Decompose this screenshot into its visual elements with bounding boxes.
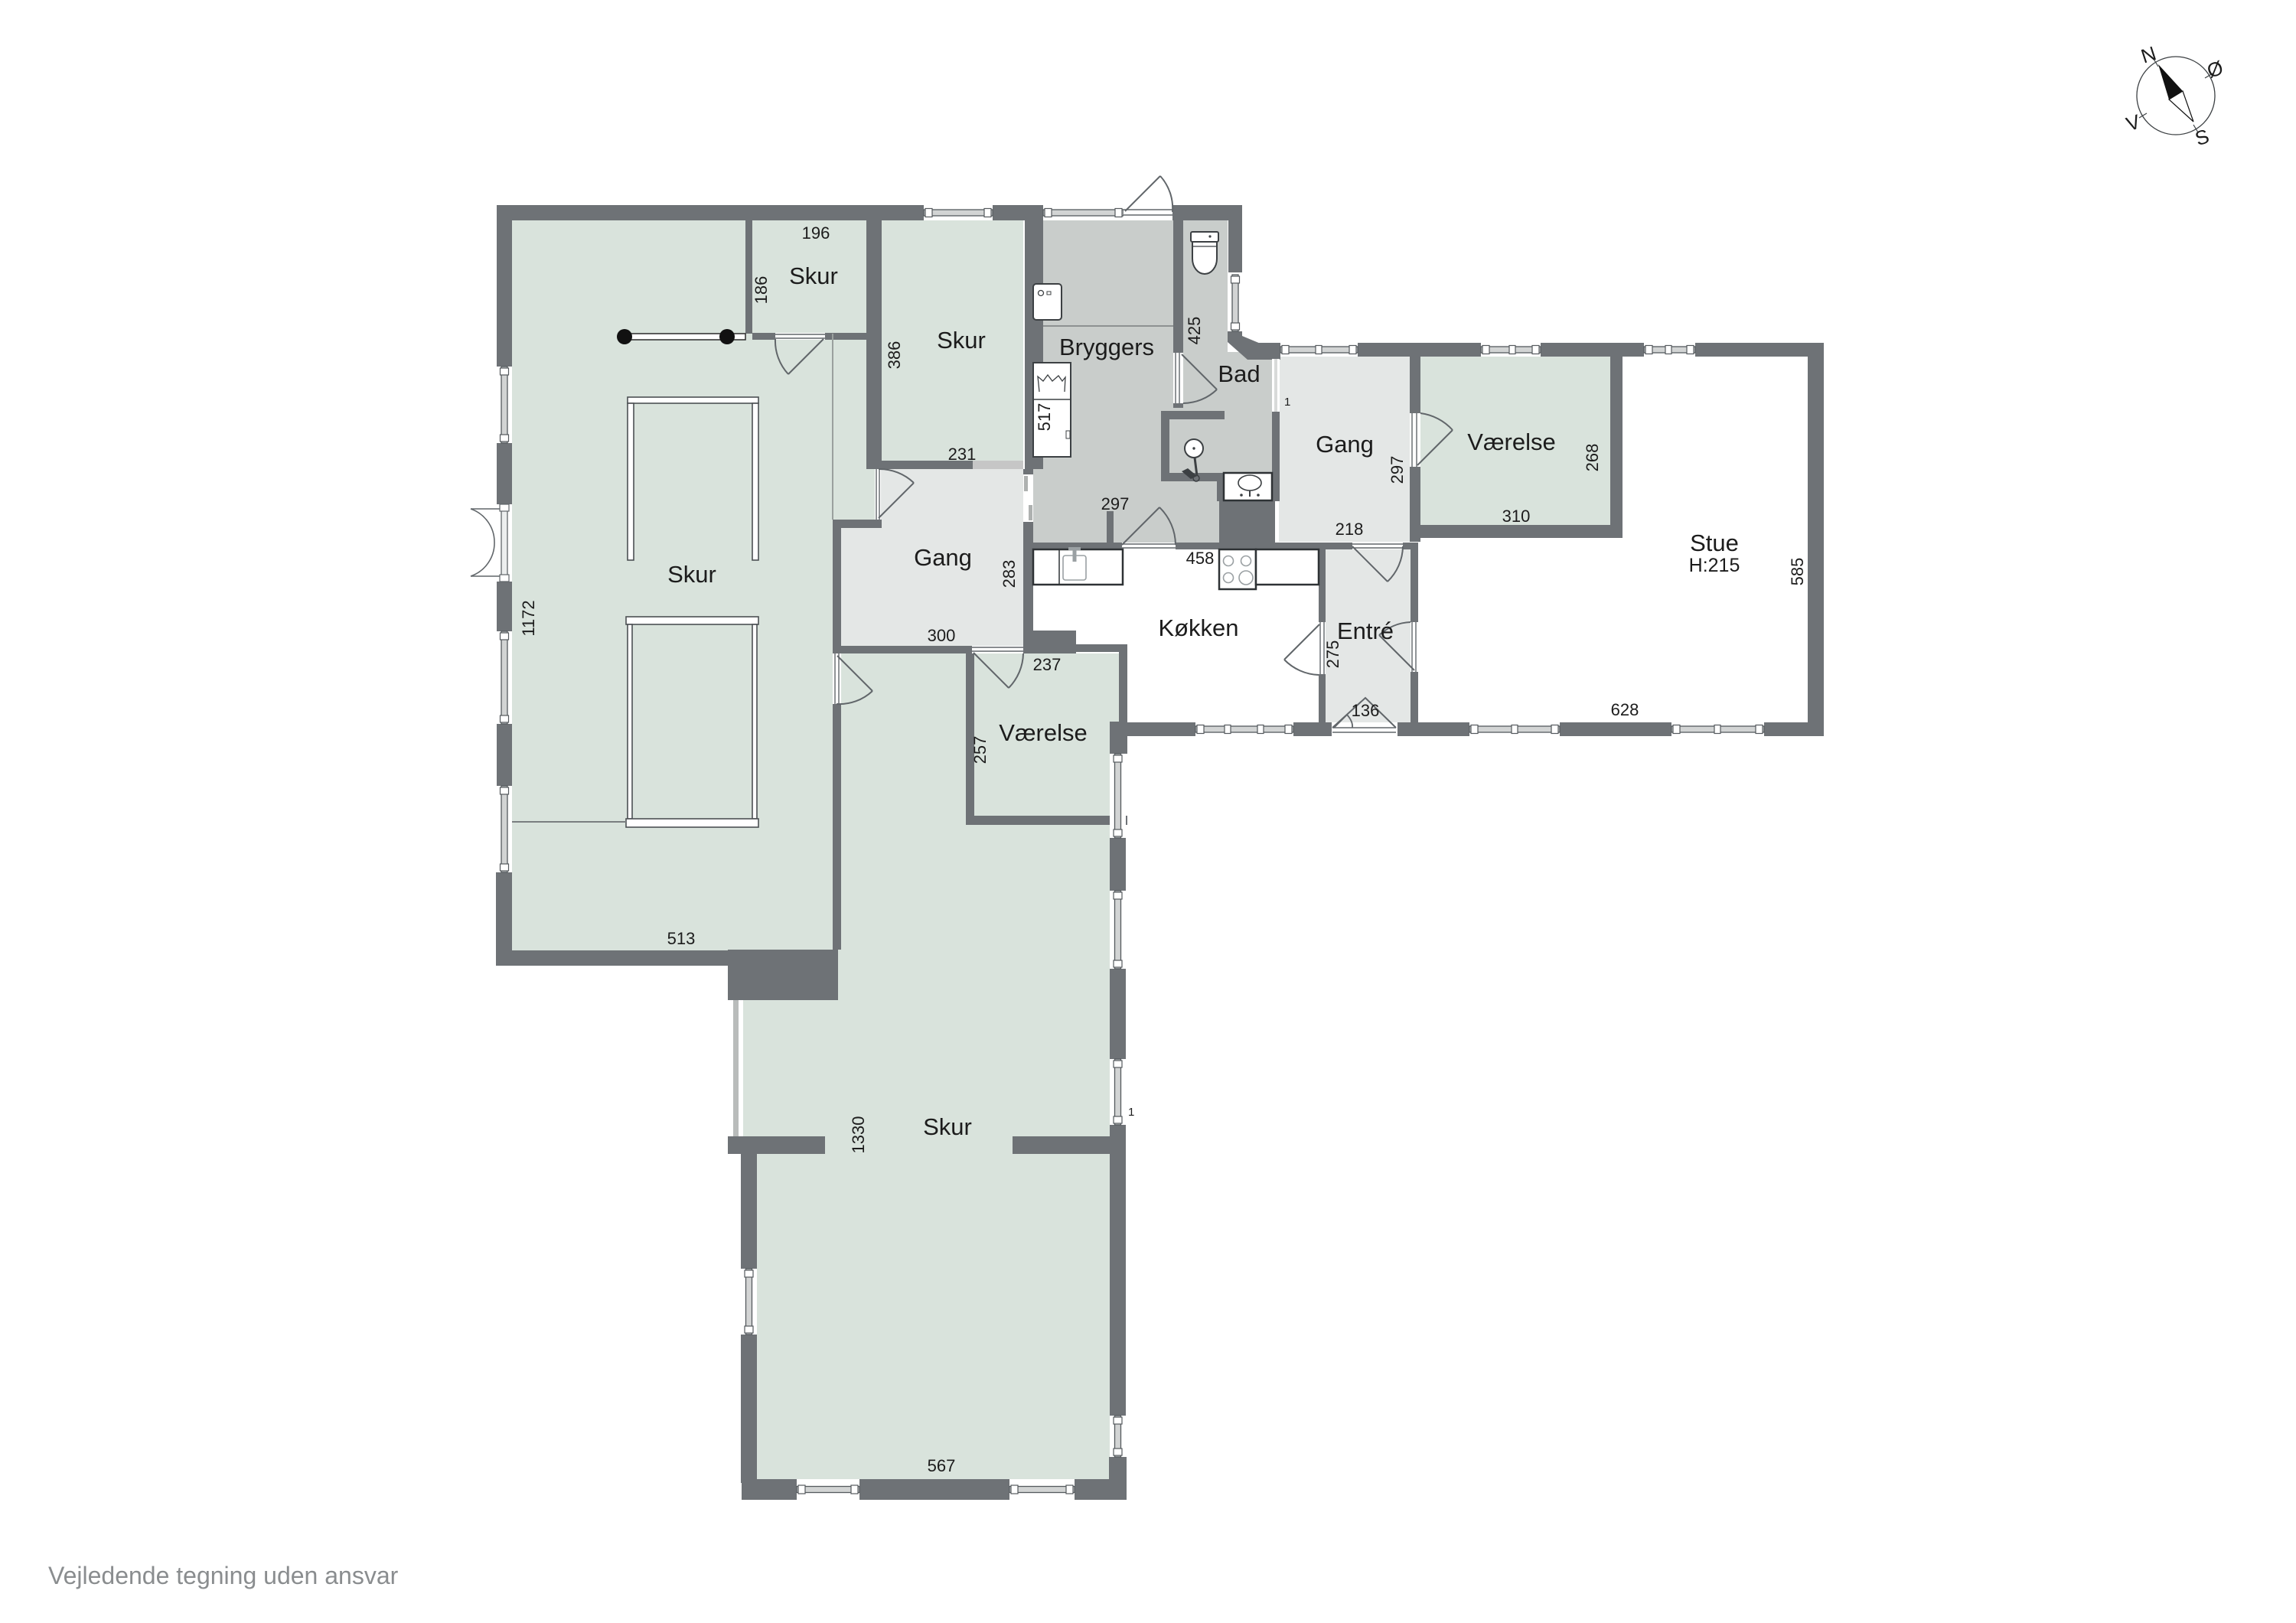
svg-text:237: 237	[1033, 655, 1062, 674]
svg-text:Værelse: Værelse	[1467, 429, 1555, 455]
svg-text:H:215: H:215	[1689, 555, 1740, 576]
svg-text:Værelse: Værelse	[999, 719, 1087, 746]
svg-text:Skur: Skur	[667, 561, 716, 588]
svg-text:Stue: Stue	[1690, 530, 1739, 556]
svg-text:Vejledende tegning uden ansvar: Vejledende tegning uden ansvar	[48, 1562, 399, 1589]
svg-text:300: 300	[928, 626, 956, 645]
svg-text:283: 283	[1000, 560, 1019, 588]
svg-text:275: 275	[1323, 640, 1342, 669]
svg-text:268: 268	[1583, 444, 1602, 472]
svg-text:Bad: Bad	[1218, 360, 1260, 387]
svg-text:Køkken: Køkken	[1158, 614, 1238, 641]
svg-text:136: 136	[1352, 701, 1380, 720]
svg-text:257: 257	[970, 736, 990, 764]
svg-text:Gang: Gang	[1316, 431, 1374, 458]
svg-text:Gang: Gang	[914, 544, 972, 571]
svg-text:517: 517	[1035, 403, 1054, 432]
svg-text:458: 458	[1186, 549, 1215, 568]
svg-text:186: 186	[752, 276, 771, 305]
svg-text:1172: 1172	[519, 600, 538, 636]
svg-text:1: 1	[1284, 396, 1290, 409]
svg-text:297: 297	[1101, 494, 1130, 513]
svg-text:Bryggers: Bryggers	[1059, 334, 1154, 360]
svg-text:310: 310	[1502, 507, 1531, 526]
svg-text:218: 218	[1336, 520, 1364, 539]
svg-text:425: 425	[1185, 317, 1204, 345]
svg-text:1: 1	[1128, 1106, 1134, 1119]
svg-text:386: 386	[885, 341, 904, 370]
svg-text:585: 585	[1788, 558, 1807, 586]
svg-text:Entré: Entré	[1337, 618, 1394, 644]
svg-text:Skur: Skur	[789, 262, 838, 289]
svg-text:297: 297	[1388, 456, 1407, 484]
svg-text:231: 231	[948, 445, 977, 464]
svg-text:Skur: Skur	[937, 327, 986, 354]
svg-text:Skur: Skur	[923, 1113, 972, 1140]
svg-text:1330: 1330	[849, 1116, 868, 1154]
svg-text:513: 513	[667, 929, 696, 948]
svg-text:567: 567	[928, 1456, 956, 1475]
svg-text:196: 196	[802, 223, 830, 243]
svg-text:628: 628	[1611, 700, 1639, 719]
